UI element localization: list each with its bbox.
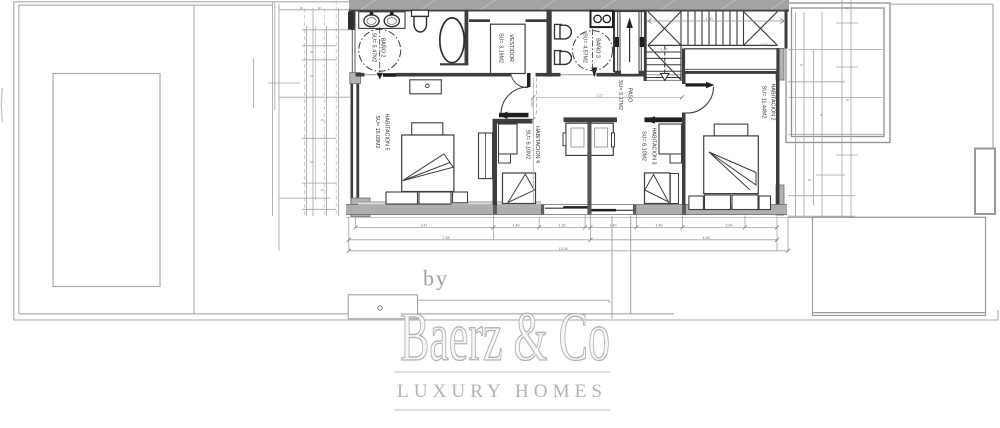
svg-text:SU= 5.47M2: SU= 5.47M2	[370, 32, 376, 62]
svg-text:SU= 6.10M2: SU= 6.10M2	[524, 129, 530, 159]
svg-text:5: 5	[819, 114, 823, 116]
svg-text:SU= 3.19M2: SU= 3.19M2	[498, 33, 504, 63]
svg-text:LUXURY HOMES: LUXURY HOMES	[397, 381, 607, 402]
svg-text:PASO: PASO	[626, 88, 632, 103]
svg-text:SU= 5.17M2: SU= 5.17M2	[617, 80, 623, 110]
svg-text:13.08: 13.08	[559, 247, 568, 251]
svg-text:5: 5	[799, 64, 803, 66]
svg-text:Baerz & Co: Baerz & Co	[400, 299, 610, 376]
svg-text:5: 5	[299, 7, 303, 9]
svg-text:5: 5	[309, 75, 313, 77]
svg-text:5: 5	[320, 189, 324, 191]
svg-text:1.36: 1.36	[559, 223, 566, 227]
svg-text:VESTIDOR: VESTIDOR	[508, 34, 514, 62]
svg-text:HABITACION 4: HABITACION 4	[534, 126, 540, 163]
svg-text:HABITACION 5: HABITACION 5	[384, 113, 390, 150]
svg-text:2.40: 2.40	[761, 43, 768, 47]
svg-text:3.41: 3.41	[421, 223, 428, 227]
svg-text:SU= 11.44M2: SU= 11.44M2	[761, 86, 767, 119]
svg-text:SU= 15.08M2: SU= 15.08M2	[374, 115, 380, 148]
svg-text:5: 5	[807, 179, 811, 181]
svg-text:5: 5	[309, 161, 313, 163]
svg-text:1.40: 1.40	[513, 223, 520, 227]
svg-text:5: 5	[309, 51, 313, 53]
svg-text:1.20: 1.20	[661, 47, 668, 51]
svg-text:5: 5	[845, 7, 849, 9]
svg-text:1.17: 1.17	[596, 93, 603, 97]
svg-text:HABITACION 3: HABITACION 3	[651, 127, 657, 164]
svg-text:by: by	[423, 266, 449, 291]
svg-text:1.90: 1.90	[706, 17, 713, 21]
svg-text:SU= 4.57M2: SU= 4.57M2	[582, 33, 588, 63]
svg-text:2.60: 2.60	[530, 100, 534, 107]
svg-text:HABITACION 2: HABITACION 2	[770, 83, 776, 120]
svg-text:4.55: 4.55	[703, 236, 710, 240]
svg-text:SU= 6.10M2: SU= 6.10M2	[640, 131, 646, 161]
svg-text:2.40: 2.40	[726, 223, 733, 227]
svg-text:5: 5	[320, 119, 324, 121]
svg-text:1.40: 1.40	[610, 223, 617, 227]
svg-text:5: 5	[845, 99, 849, 101]
svg-text:BAÑO 2: BAÑO 2	[379, 38, 386, 58]
svg-text:5: 5	[317, 7, 321, 9]
svg-text:7.28: 7.28	[443, 236, 450, 240]
svg-text:BAÑO 3: BAÑO 3	[594, 38, 601, 58]
svg-text:1.40: 1.40	[656, 223, 663, 227]
